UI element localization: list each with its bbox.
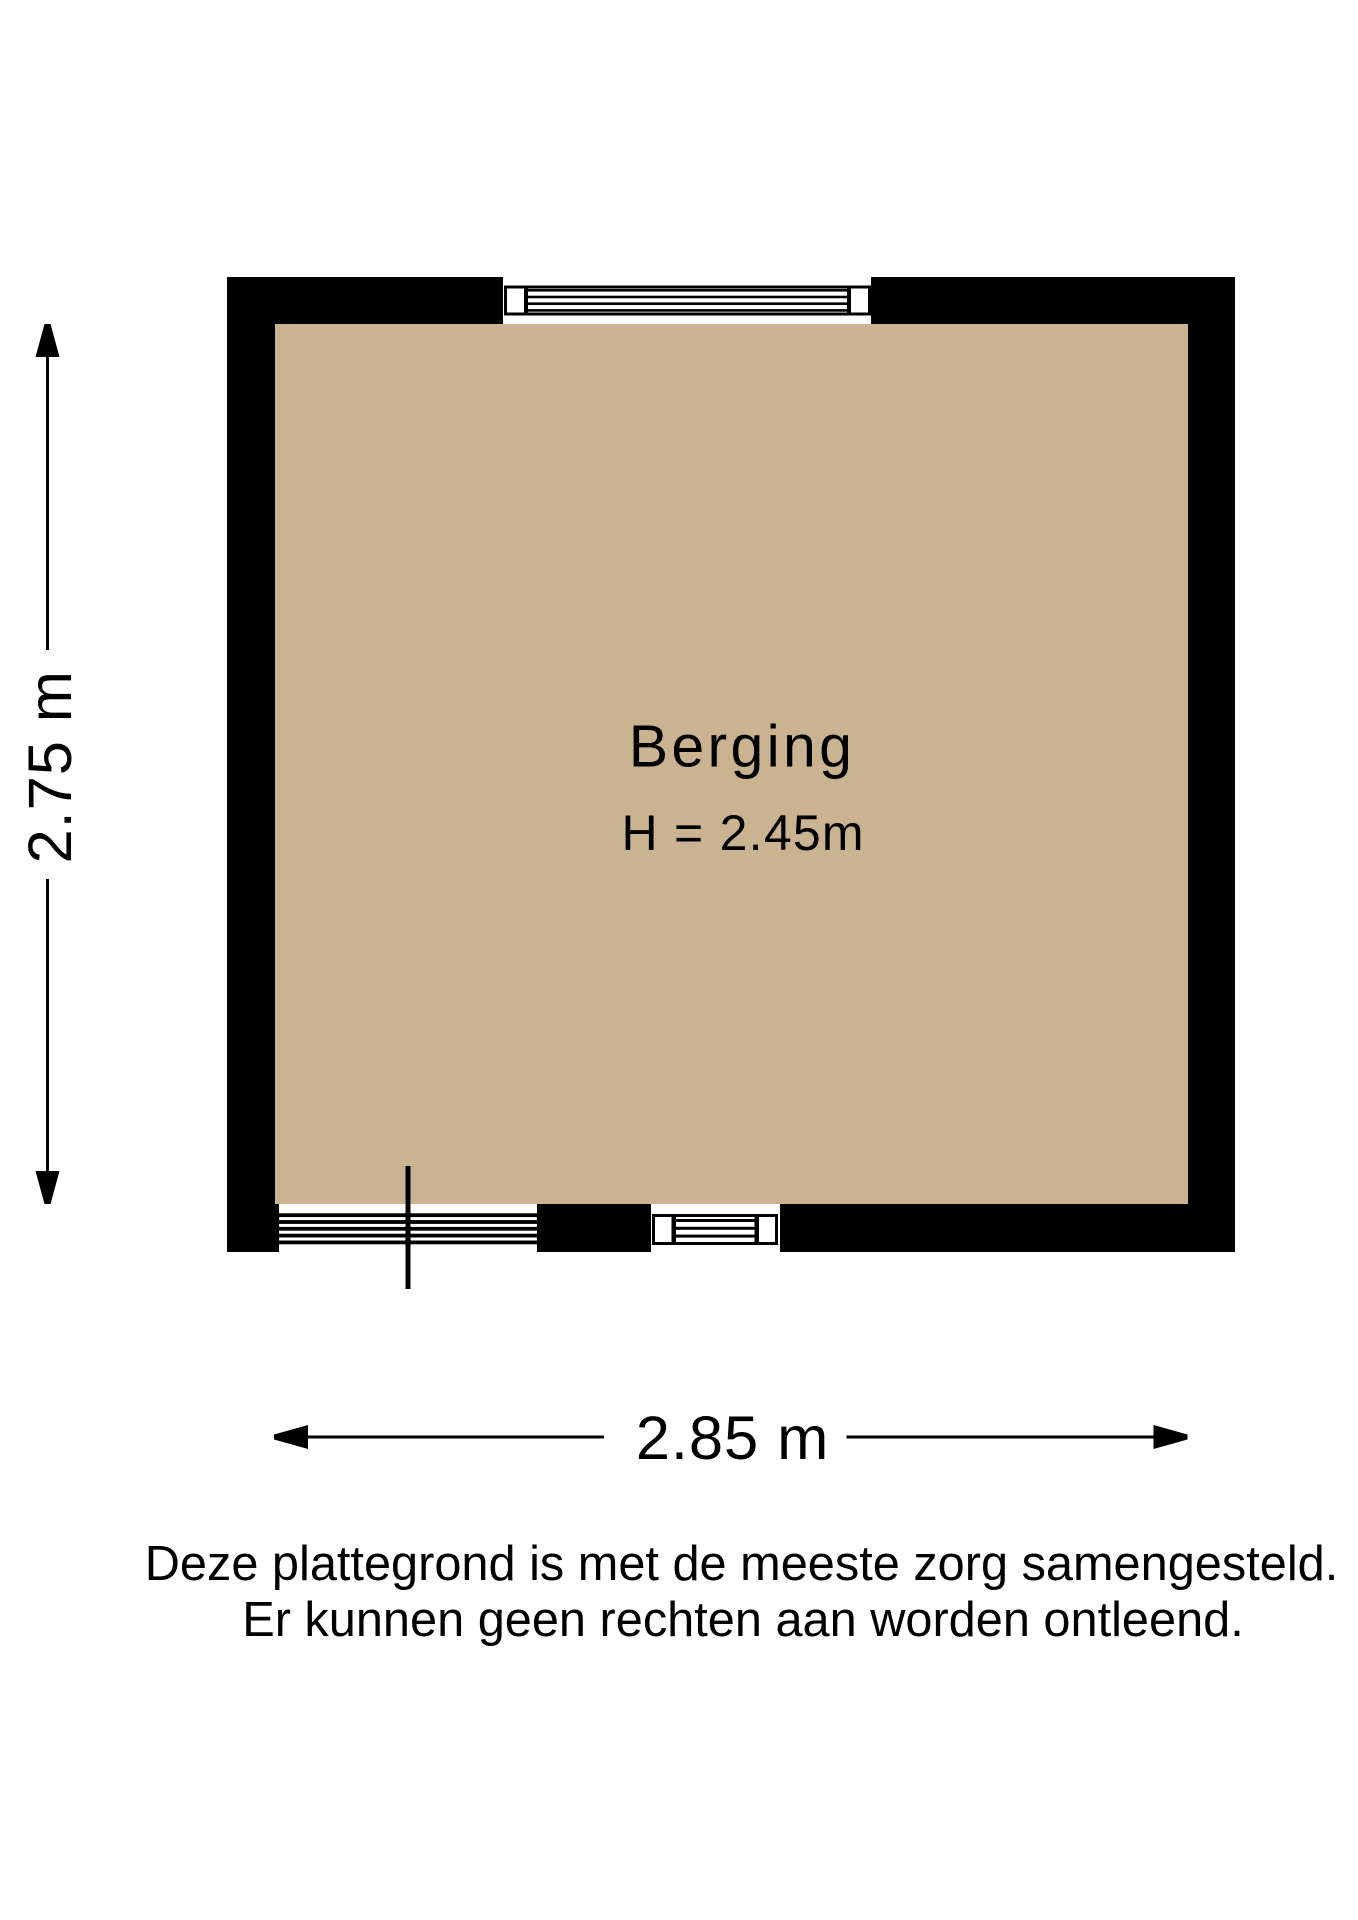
svg-text:2.75 m: 2.75 m	[16, 670, 85, 863]
svg-text:Berging: Berging	[629, 713, 855, 779]
svg-text:H = 2.45m: H = 2.45m	[622, 805, 865, 861]
svg-text:2.85 m: 2.85 m	[636, 1404, 829, 1473]
svg-text:Deze plattegrond is met de mee: Deze plattegrond is met de meeste zorg s…	[145, 1537, 1339, 1591]
svg-text:Er kunnen geen rechten aan wor: Er kunnen geen rechten aan worden ontlee…	[242, 1593, 1244, 1647]
